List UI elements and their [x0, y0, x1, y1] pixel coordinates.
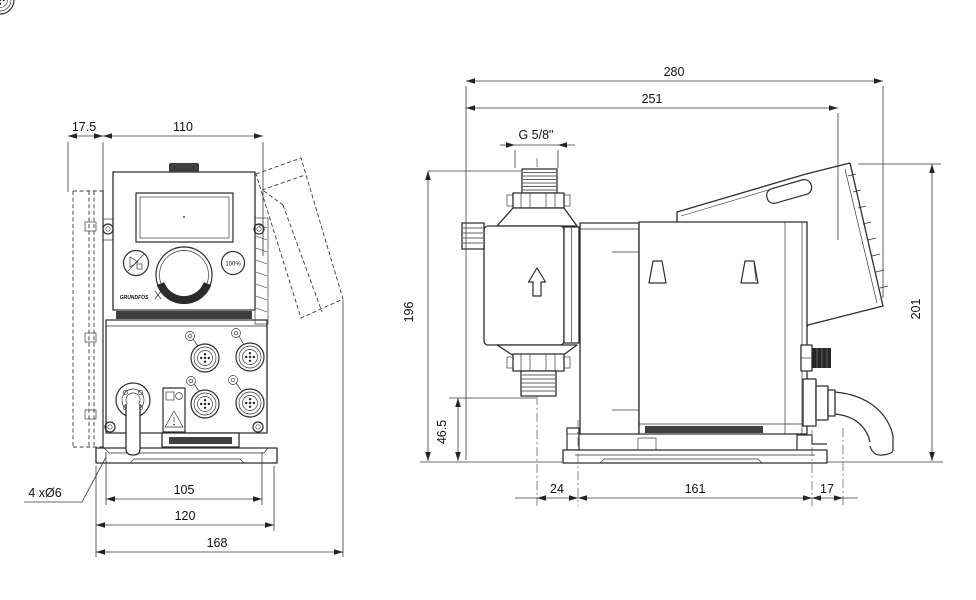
rear-connections — [801, 345, 893, 455]
dim-label-bracket-offset: 17.5 — [72, 120, 96, 134]
dim-label-hole-pitch: 105 — [174, 483, 195, 497]
dim-label-connection-thread: G 5/8" — [518, 128, 553, 142]
union-nut-top — [513, 193, 564, 208]
motor-housing — [580, 222, 807, 434]
dosing-head — [462, 158, 579, 506]
dim-label-connection-clearance: 46.5 — [435, 420, 449, 444]
dim-label-mounting-holes: 4 xØ6 — [28, 486, 61, 500]
dim-label-depth-to-cube: 251 — [642, 92, 663, 106]
dim-label-height-to-connection: 196 — [402, 302, 416, 323]
dim-label-plate-width: 120 — [175, 509, 196, 523]
vent-valve — [462, 223, 484, 249]
cube-bottom-band — [116, 311, 252, 319]
dim-label-foot-front-offset: 24 — [550, 482, 564, 496]
wall-mounting-bracket — [73, 190, 103, 448]
drawing-svg: 100% GRUNDFOS — [0, 0, 976, 600]
head-body — [484, 226, 564, 345]
open-control-cube-dashed — [256, 158, 343, 318]
union-nut-bottom — [513, 354, 564, 371]
dim-label-cube-width: 110 — [173, 120, 193, 134]
full-capacity-label: 100% — [225, 262, 241, 268]
dim-label-overall-depth: 280 — [664, 65, 685, 79]
side-view: 280 251 G 5/8" 196 46.5 201 24 — [402, 65, 943, 506]
mains-cable — [835, 392, 893, 450]
dim-label-foot-length: 161 — [685, 482, 706, 496]
brand-logo: GRUNDFOS — [120, 295, 149, 301]
side-tab — [103, 219, 113, 240]
dim-label-overall-width: 168 — [207, 536, 228, 550]
dim-label-overall-height: 201 — [909, 299, 923, 320]
threaded-plug — [812, 348, 831, 368]
control-cube: 100% GRUNDFOS — [103, 163, 264, 319]
front-view: 100% GRUNDFOS — [0, 0, 343, 557]
top-cap — [169, 163, 199, 172]
display-dot — [183, 216, 185, 218]
mains-cable-gland — [803, 379, 816, 426]
dim-label-foot-rear-offset: 17 — [820, 482, 834, 496]
dimensional-drawing: 100% GRUNDFOS — [0, 0, 976, 600]
m12-socket — [0, 0, 14, 14]
cable — [126, 404, 140, 455]
